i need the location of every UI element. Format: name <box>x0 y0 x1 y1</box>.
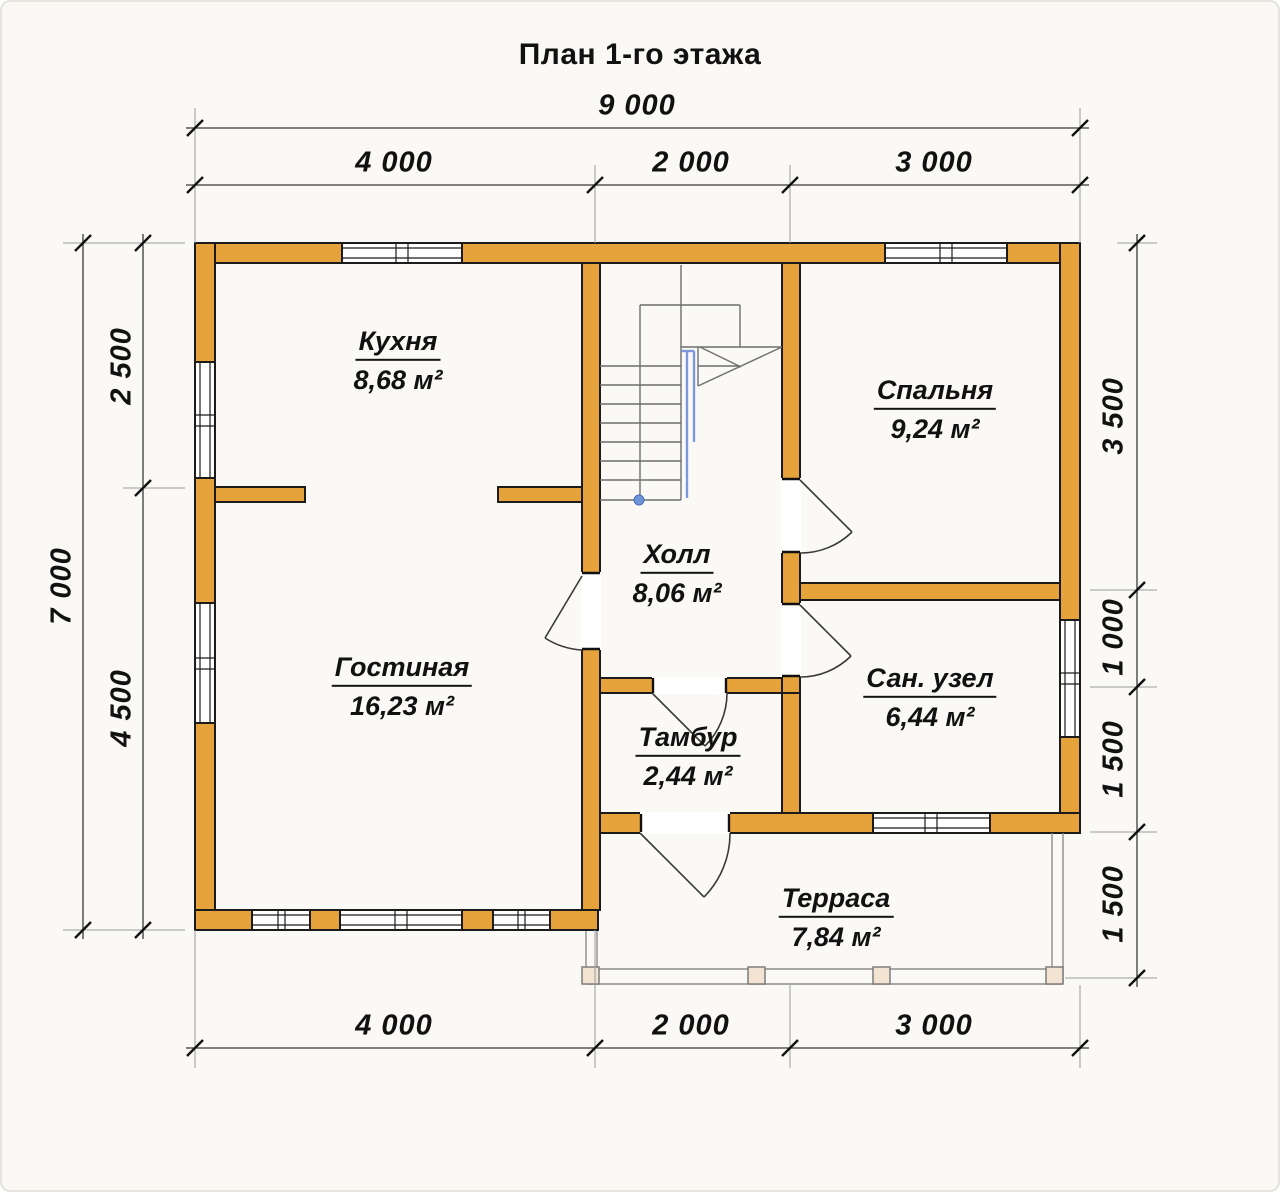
window-living-south-2 <box>340 910 462 930</box>
dim-top-total: 9 000 <box>598 90 676 123</box>
wall-bedroom-bottom <box>800 583 1060 600</box>
wall-east <box>1060 243 1080 833</box>
window-bedroom-north <box>885 243 1007 263</box>
window-san-terrace <box>873 813 990 833</box>
terrace-post <box>748 967 765 984</box>
room-label-tambur: Тамбур 2,44 м² <box>635 723 740 791</box>
dim-left-seg-2: 4 500 <box>106 669 139 747</box>
opening-entrance-door <box>640 812 730 834</box>
door-bath <box>800 605 851 677</box>
dim-top-seg-3: 3 000 <box>895 147 973 180</box>
room-label-terrace: Терраса 7,84 м² <box>779 884 894 952</box>
stairs <box>600 265 782 505</box>
room-label-san: Сан. узел 6,44 м² <box>863 664 996 732</box>
opening-living-door <box>581 572 601 650</box>
railing-post-dot <box>634 495 644 505</box>
dim-top-seg-1: 4 000 <box>355 147 433 180</box>
door-living <box>545 576 582 650</box>
dim-top-seg-2: 2 000 <box>652 147 730 180</box>
room-name: Терраса <box>779 884 894 918</box>
room-area: 8,06 м² <box>632 579 721 609</box>
stair-railing <box>634 351 694 505</box>
window-living-west <box>195 603 215 723</box>
room-name: Тамбур <box>635 723 740 757</box>
room-area: 16,23 м² <box>332 692 472 722</box>
terrace-post <box>582 967 599 984</box>
door-bedroom <box>800 480 852 553</box>
window-living-south-1 <box>252 910 310 930</box>
dim-bottom-seg-3: 3 000 <box>895 1010 973 1043</box>
dim-right-seg-4: 1 500 <box>1098 865 1131 943</box>
dim-bottom-seg-2: 2 000 <box>652 1010 730 1043</box>
room-label-hall: Холл 8,06 м² <box>632 540 721 608</box>
dim-left-total: 7 000 <box>46 547 79 625</box>
dim-right-seg-2: 1 000 <box>1098 598 1131 676</box>
door-entrance <box>640 833 730 897</box>
room-area: 2,44 м² <box>635 762 740 792</box>
wall-west <box>195 243 215 930</box>
room-label-living: Гостиная 16,23 м² <box>332 653 472 721</box>
wall-kitchen-divider-right <box>498 487 582 502</box>
room-name: Гостиная <box>332 653 472 687</box>
room-area: 8,68 м² <box>353 366 442 396</box>
window-kitchen-west <box>195 362 215 478</box>
dim-right-seg-1: 3 500 <box>1098 377 1131 455</box>
window-living-south-3 <box>493 910 550 930</box>
window-bath-east <box>1060 620 1080 737</box>
dim-right-seg-3: 1 500 <box>1098 720 1131 798</box>
opening-bedroom-door <box>781 478 801 553</box>
room-name: Холл <box>640 540 713 574</box>
terrace-post <box>873 967 890 984</box>
terrace-post <box>1046 967 1063 984</box>
wall-tambur-san-divider <box>782 693 800 813</box>
room-label-kitchen: Кухня 8,68 м² <box>353 327 442 395</box>
room-label-bedroom: Спальня 9,24 м² <box>874 376 996 444</box>
window-kitchen-north <box>342 243 462 263</box>
room-name: Кухня <box>356 327 441 361</box>
room-area: 6,44 м² <box>863 703 996 733</box>
room-name: Сан. узел <box>863 664 996 698</box>
room-area: 9,24 м² <box>874 415 996 445</box>
opening-tambur-door <box>652 677 727 694</box>
floor-plan-page: План 1-го этажа <box>0 0 1280 1192</box>
room-area: 7,84 м² <box>779 923 894 953</box>
wall-kitchen-divider-left <box>215 487 305 502</box>
room-name: Спальня <box>874 376 996 410</box>
dim-bottom-seg-1: 4 000 <box>355 1010 433 1043</box>
opening-bath-door <box>781 603 801 677</box>
dim-left-seg-1: 2 500 <box>106 327 139 405</box>
